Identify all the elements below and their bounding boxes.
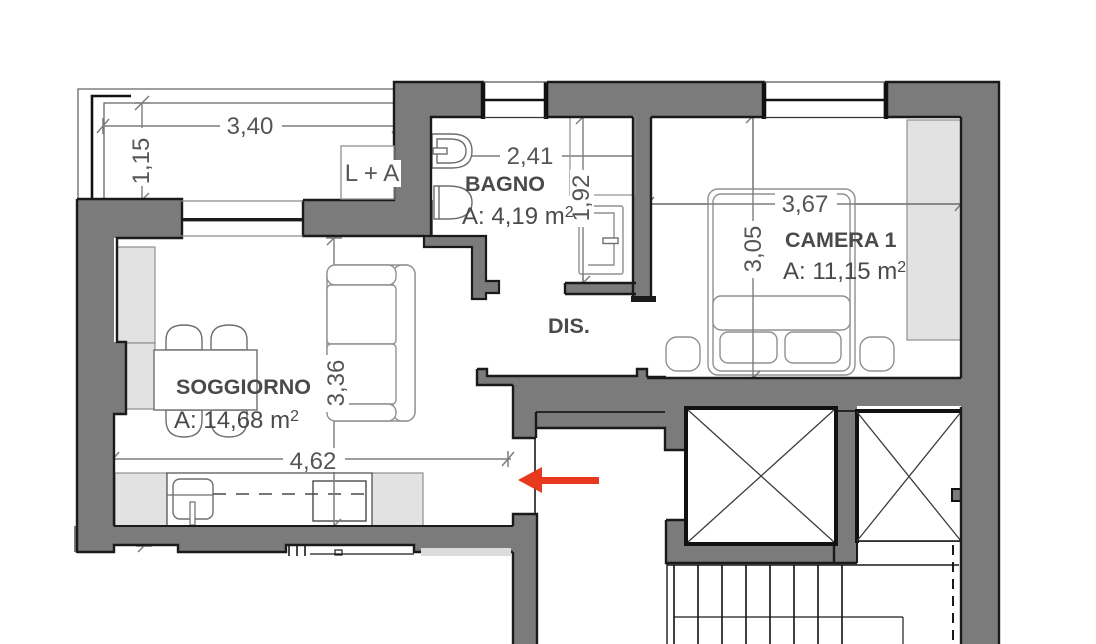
svg-text:A: 14,68 m2: A: 14,68 m2 <box>174 407 299 434</box>
svg-text:2,41: 2,41 <box>507 143 554 170</box>
svg-text:A: 11,15 m2: A: 11,15 m2 <box>783 258 906 285</box>
svg-text:3,05: 3,05 <box>740 226 767 273</box>
svg-text:1,15: 1,15 <box>128 138 155 185</box>
svg-text:CAMERA 1: CAMERA 1 <box>785 228 897 252</box>
svg-text:3,40: 3,40 <box>227 113 274 140</box>
svg-text:L + A: L + A <box>345 160 400 187</box>
svg-text:4,62: 4,62 <box>290 448 337 475</box>
svg-text:SOGGIORNO: SOGGIORNO <box>176 375 311 399</box>
svg-text:BAGNO: BAGNO <box>465 172 545 196</box>
svg-text:DIS.: DIS. <box>548 314 590 338</box>
svg-text:3,67: 3,67 <box>782 191 829 218</box>
svg-text:A: 4,19 m2: A: 4,19 m2 <box>462 203 574 230</box>
svg-text:3,36: 3,36 <box>323 360 350 407</box>
